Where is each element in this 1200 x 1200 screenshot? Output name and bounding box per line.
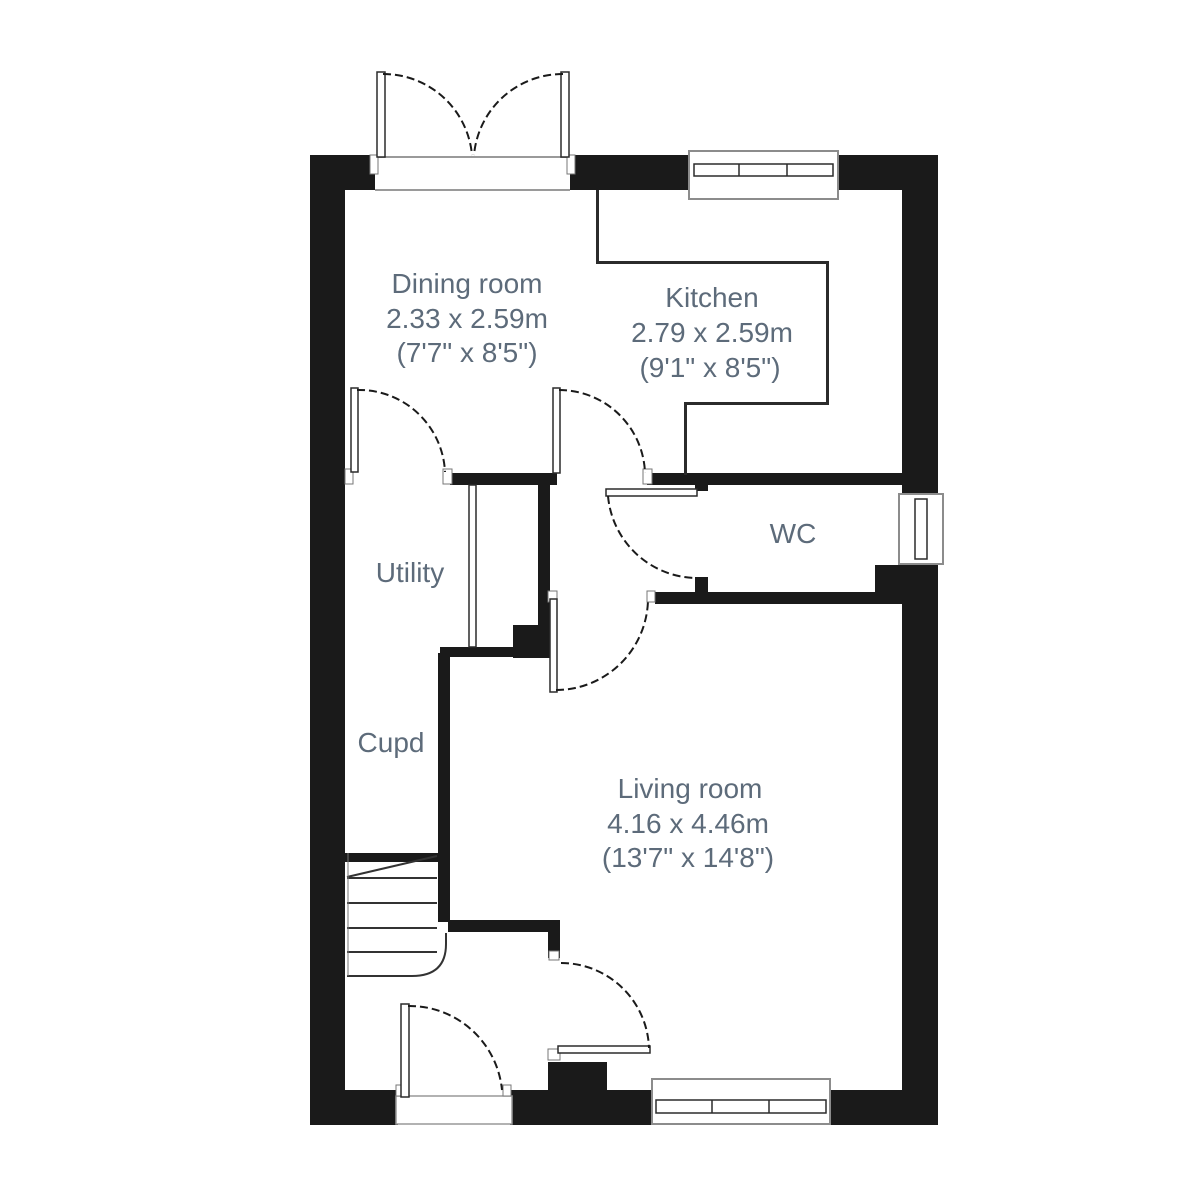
window-glass (915, 499, 927, 559)
door-leaf (606, 489, 697, 496)
door-swing-arc (608, 496, 700, 578)
door-leaf (558, 1046, 650, 1053)
wc-door (606, 489, 700, 578)
room-labels: Dining room 2.33 x 2.59m (7'7" x 8'5") K… (358, 268, 817, 873)
door-swing-arc (559, 390, 645, 473)
window-glass (694, 164, 833, 176)
wall-bottom-left (310, 1090, 398, 1125)
door-swing-arc (556, 600, 648, 690)
lobby-living-door (548, 951, 650, 1060)
kitchen-window (689, 151, 838, 199)
wc-window (899, 494, 943, 564)
wall-cupboard-right (438, 653, 450, 922)
french-doors (370, 72, 575, 190)
door-leaf (553, 388, 560, 473)
wall-lobby-chunk (548, 1062, 607, 1090)
wc-duct-boxing (875, 565, 902, 604)
door-leaf (401, 1004, 409, 1097)
kitchen-divider-line (684, 402, 687, 475)
room-size-kitchen-metric: 2.79 x 2.59m (631, 317, 793, 348)
door-leaf (561, 72, 569, 157)
room-label-wc: WC (770, 518, 817, 549)
window-glass (656, 1100, 826, 1113)
thin-dividers (469, 190, 829, 647)
door-jamb (647, 591, 655, 602)
door-jamb (643, 469, 652, 484)
kitchen-divider-line (596, 190, 599, 263)
room-label-dining: Dining room (392, 268, 543, 299)
living-room-door (548, 591, 655, 692)
room-label-kitchen: Kitchen (665, 282, 758, 313)
door-jamb (503, 1085, 511, 1096)
living-window (652, 1079, 830, 1124)
door-leaf (550, 599, 557, 692)
exterior-walls (310, 155, 938, 1125)
room-label-living: Living room (618, 773, 763, 804)
wall-wc-living (655, 592, 902, 604)
wall-right (902, 155, 938, 1125)
room-label-utility: Utility (376, 557, 444, 588)
room-size-living-imperial: (13'7" x 14'8") (602, 842, 774, 873)
stair-bottom-nosing (347, 933, 446, 976)
wall-step-a (513, 625, 540, 658)
front-door (396, 1004, 512, 1124)
room-size-dining-imperial: (7'7" x 8'5") (396, 337, 537, 368)
door-swing-arc (561, 963, 649, 1048)
room-size-living-metric: 4.16 x 4.46m (607, 808, 769, 839)
room-size-dining-metric: 2.33 x 2.59m (386, 303, 548, 334)
kitchen-divider-line (826, 261, 829, 405)
door-jamb (370, 155, 378, 174)
floor-plan-page: Dining room 2.33 x 2.59m (7'7" x 8'5") K… (0, 0, 1200, 1200)
room-size-kitchen-imperial: (9'1" x 8'5") (639, 352, 780, 383)
wall-left (310, 155, 345, 1125)
room-label-cupd: Cupd (358, 727, 425, 758)
hall-door (553, 388, 652, 484)
door-jamb (567, 155, 575, 174)
door-leaf (377, 72, 385, 157)
front-door-threshold (396, 1096, 512, 1124)
utility-door (345, 388, 452, 484)
floor-plan: Dining room 2.33 x 2.59m (7'7" x 8'5") K… (0, 0, 1200, 1200)
stair-top-edge (345, 853, 438, 862)
kitchen-divider-line (684, 402, 829, 405)
wall-stair-bottom (448, 920, 560, 932)
door-leaf (351, 388, 358, 472)
doors (345, 72, 700, 1124)
staircase (347, 853, 446, 976)
wall-step-b (440, 647, 515, 657)
kitchen-divider-line (596, 261, 829, 264)
door-swing-arc (408, 1006, 502, 1090)
utility-partition (469, 485, 476, 647)
door-swing-arc (474, 74, 563, 155)
door-swing-arc (383, 74, 472, 155)
door-swing-arc (357, 390, 445, 472)
wc-door-stub-bottom (695, 577, 708, 593)
door-jamb (549, 951, 559, 960)
